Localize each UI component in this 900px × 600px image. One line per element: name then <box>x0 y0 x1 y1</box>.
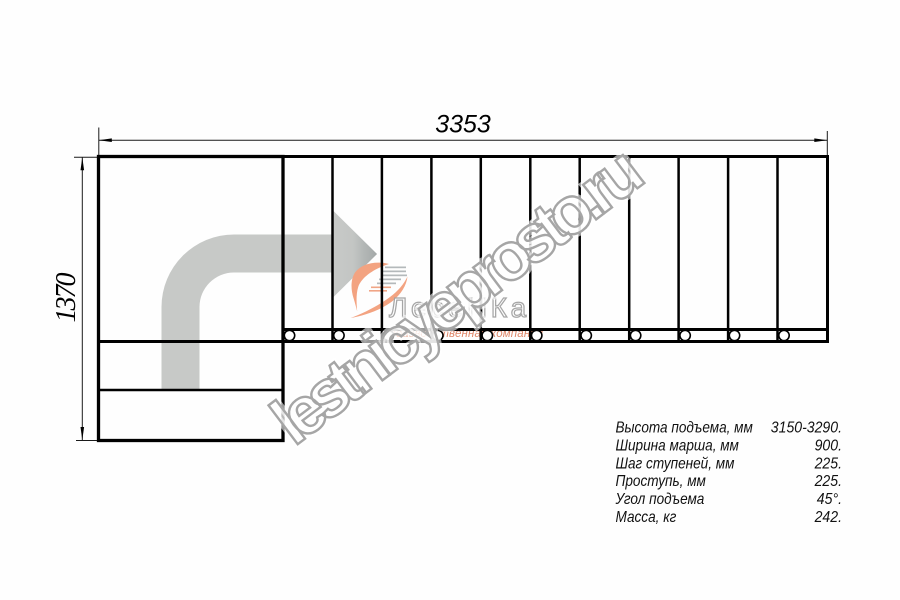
svg-text:1370: 1370 <box>51 273 82 323</box>
svg-text:3150-3290.: 3150-3290. <box>771 419 842 437</box>
svg-text:Проступь, мм: Проступь, мм <box>616 473 706 490</box>
svg-text:Шаг ступеней, мм: Шаг ступеней, мм <box>616 455 735 472</box>
svg-text:225.: 225. <box>814 454 842 472</box>
svg-text:3353: 3353 <box>435 111 491 139</box>
svg-text:Угол подъема: Угол подъема <box>615 491 705 508</box>
svg-text:Масса, кг: Масса, кг <box>616 509 677 526</box>
svg-text:225.: 225. <box>814 472 842 490</box>
svg-text:Ширина марша, мм: Ширина марша, мм <box>616 437 739 454</box>
svg-text:45°.: 45°. <box>817 490 842 508</box>
svg-text:lestnicyeprosto.ru: lestnicyeprosto.ru <box>258 135 654 459</box>
svg-text:900.: 900. <box>815 437 842 455</box>
svg-text:Высота подъема, мм: Высота подъема, мм <box>616 420 753 437</box>
svg-text:242.: 242. <box>814 508 842 526</box>
